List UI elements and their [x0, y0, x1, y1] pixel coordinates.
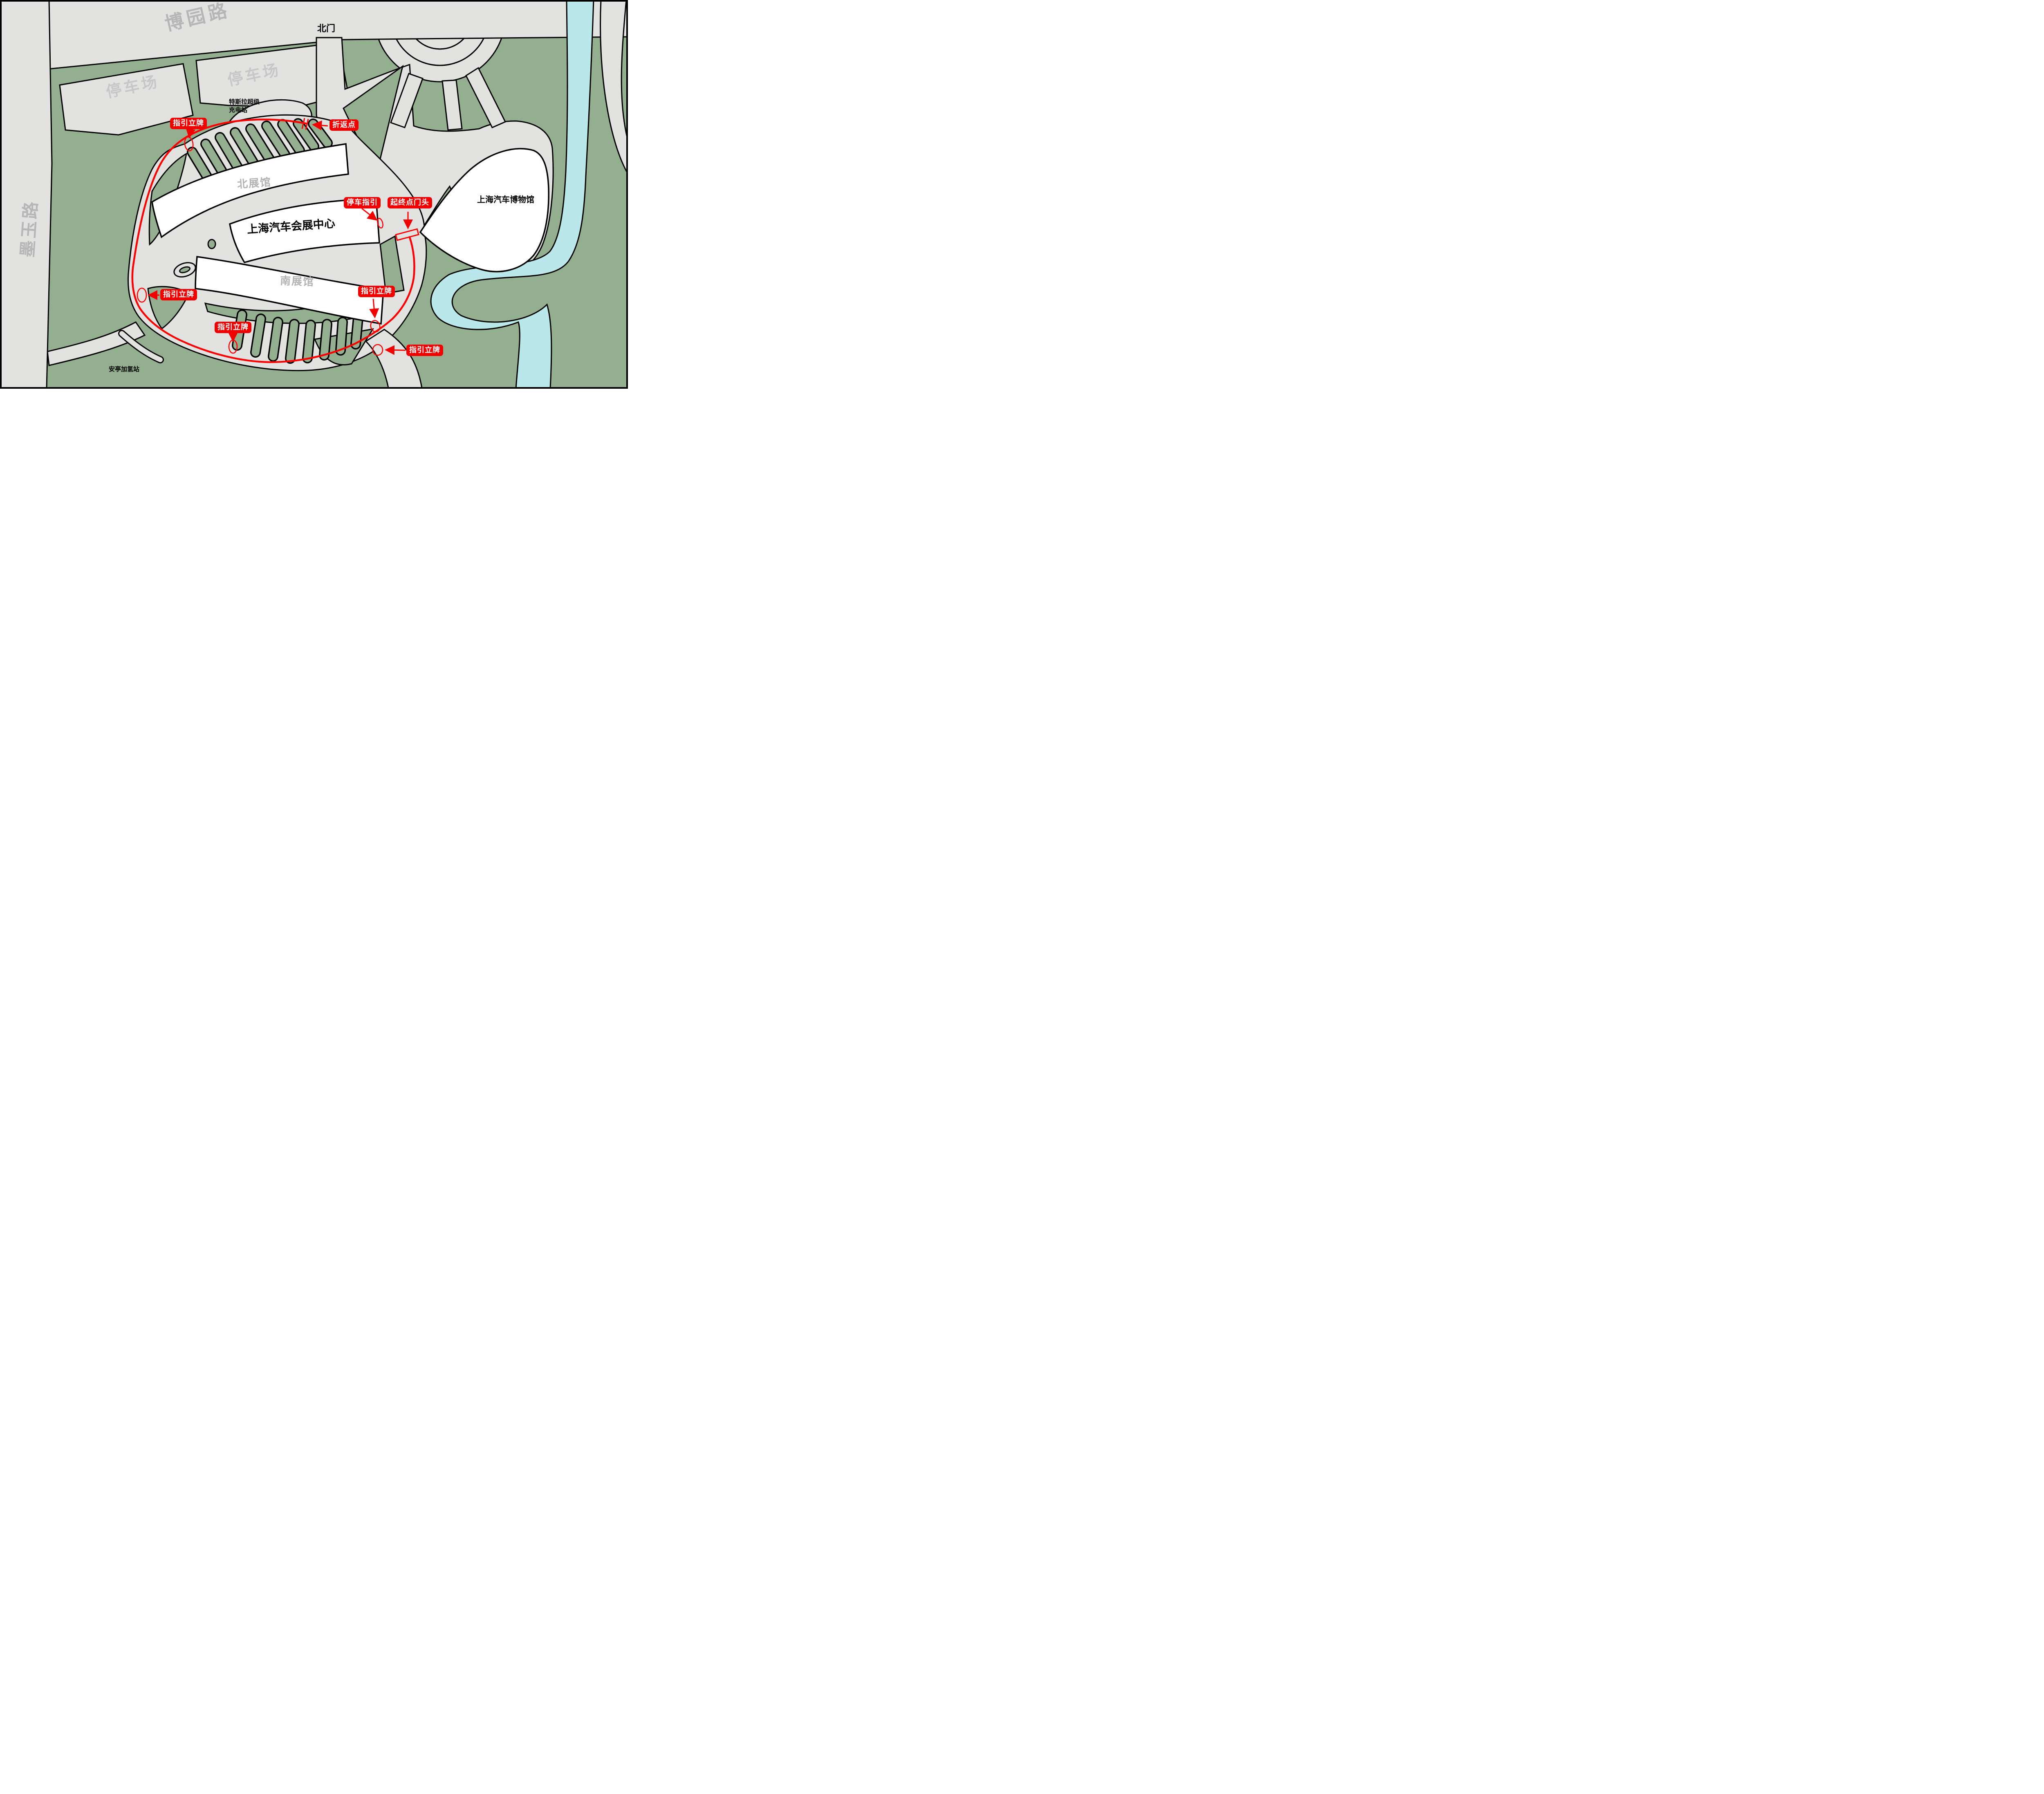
parking-row-divider: [341, 322, 343, 350]
annotation-guide-sign-5: 指引立牌: [406, 345, 443, 356]
annotation-arrow-sign5: [386, 350, 406, 350]
parking-row-divider: [273, 322, 278, 356]
parking-row-divider: [356, 318, 358, 344]
parking-row-divider: [255, 319, 261, 352]
site-map: 博园路 墨玉路 停车场 停车场 北门 特斯拉超级 充电站 安亭加氢站 北展馆 南…: [0, 0, 628, 389]
parking-row-divider: [290, 324, 294, 358]
annotation-turnaround-point: 折返点: [329, 119, 359, 131]
annotation-guide-sign-3: 指引立牌: [215, 322, 251, 333]
area-label-tesla-supercharger: 特斯拉超级 充电站: [229, 98, 260, 114]
annotation-guide-sign-2: 指引立牌: [160, 289, 197, 300]
entrance-label-north-gate: 北门: [317, 24, 335, 34]
parking-row-divider: [324, 324, 327, 355]
building-label-south-hall: 南展馆: [275, 275, 320, 288]
area-label-hydrogen-station: 安亭加氢站: [109, 366, 139, 373]
building-label-auto-museum: 上海汽车博物馆: [469, 195, 542, 204]
annotation-parking-guide: 停车指引: [344, 197, 381, 208]
parking-row-divider: [307, 325, 311, 358]
small-green-island: [208, 240, 215, 249]
map-canvas: [0, 0, 628, 389]
annotation-guide-sign-1: 指引立牌: [170, 118, 207, 129]
annotation-start-end-gate: 起终点门头: [388, 197, 432, 208]
annotation-guide-sign-4: 指引立牌: [358, 286, 395, 297]
